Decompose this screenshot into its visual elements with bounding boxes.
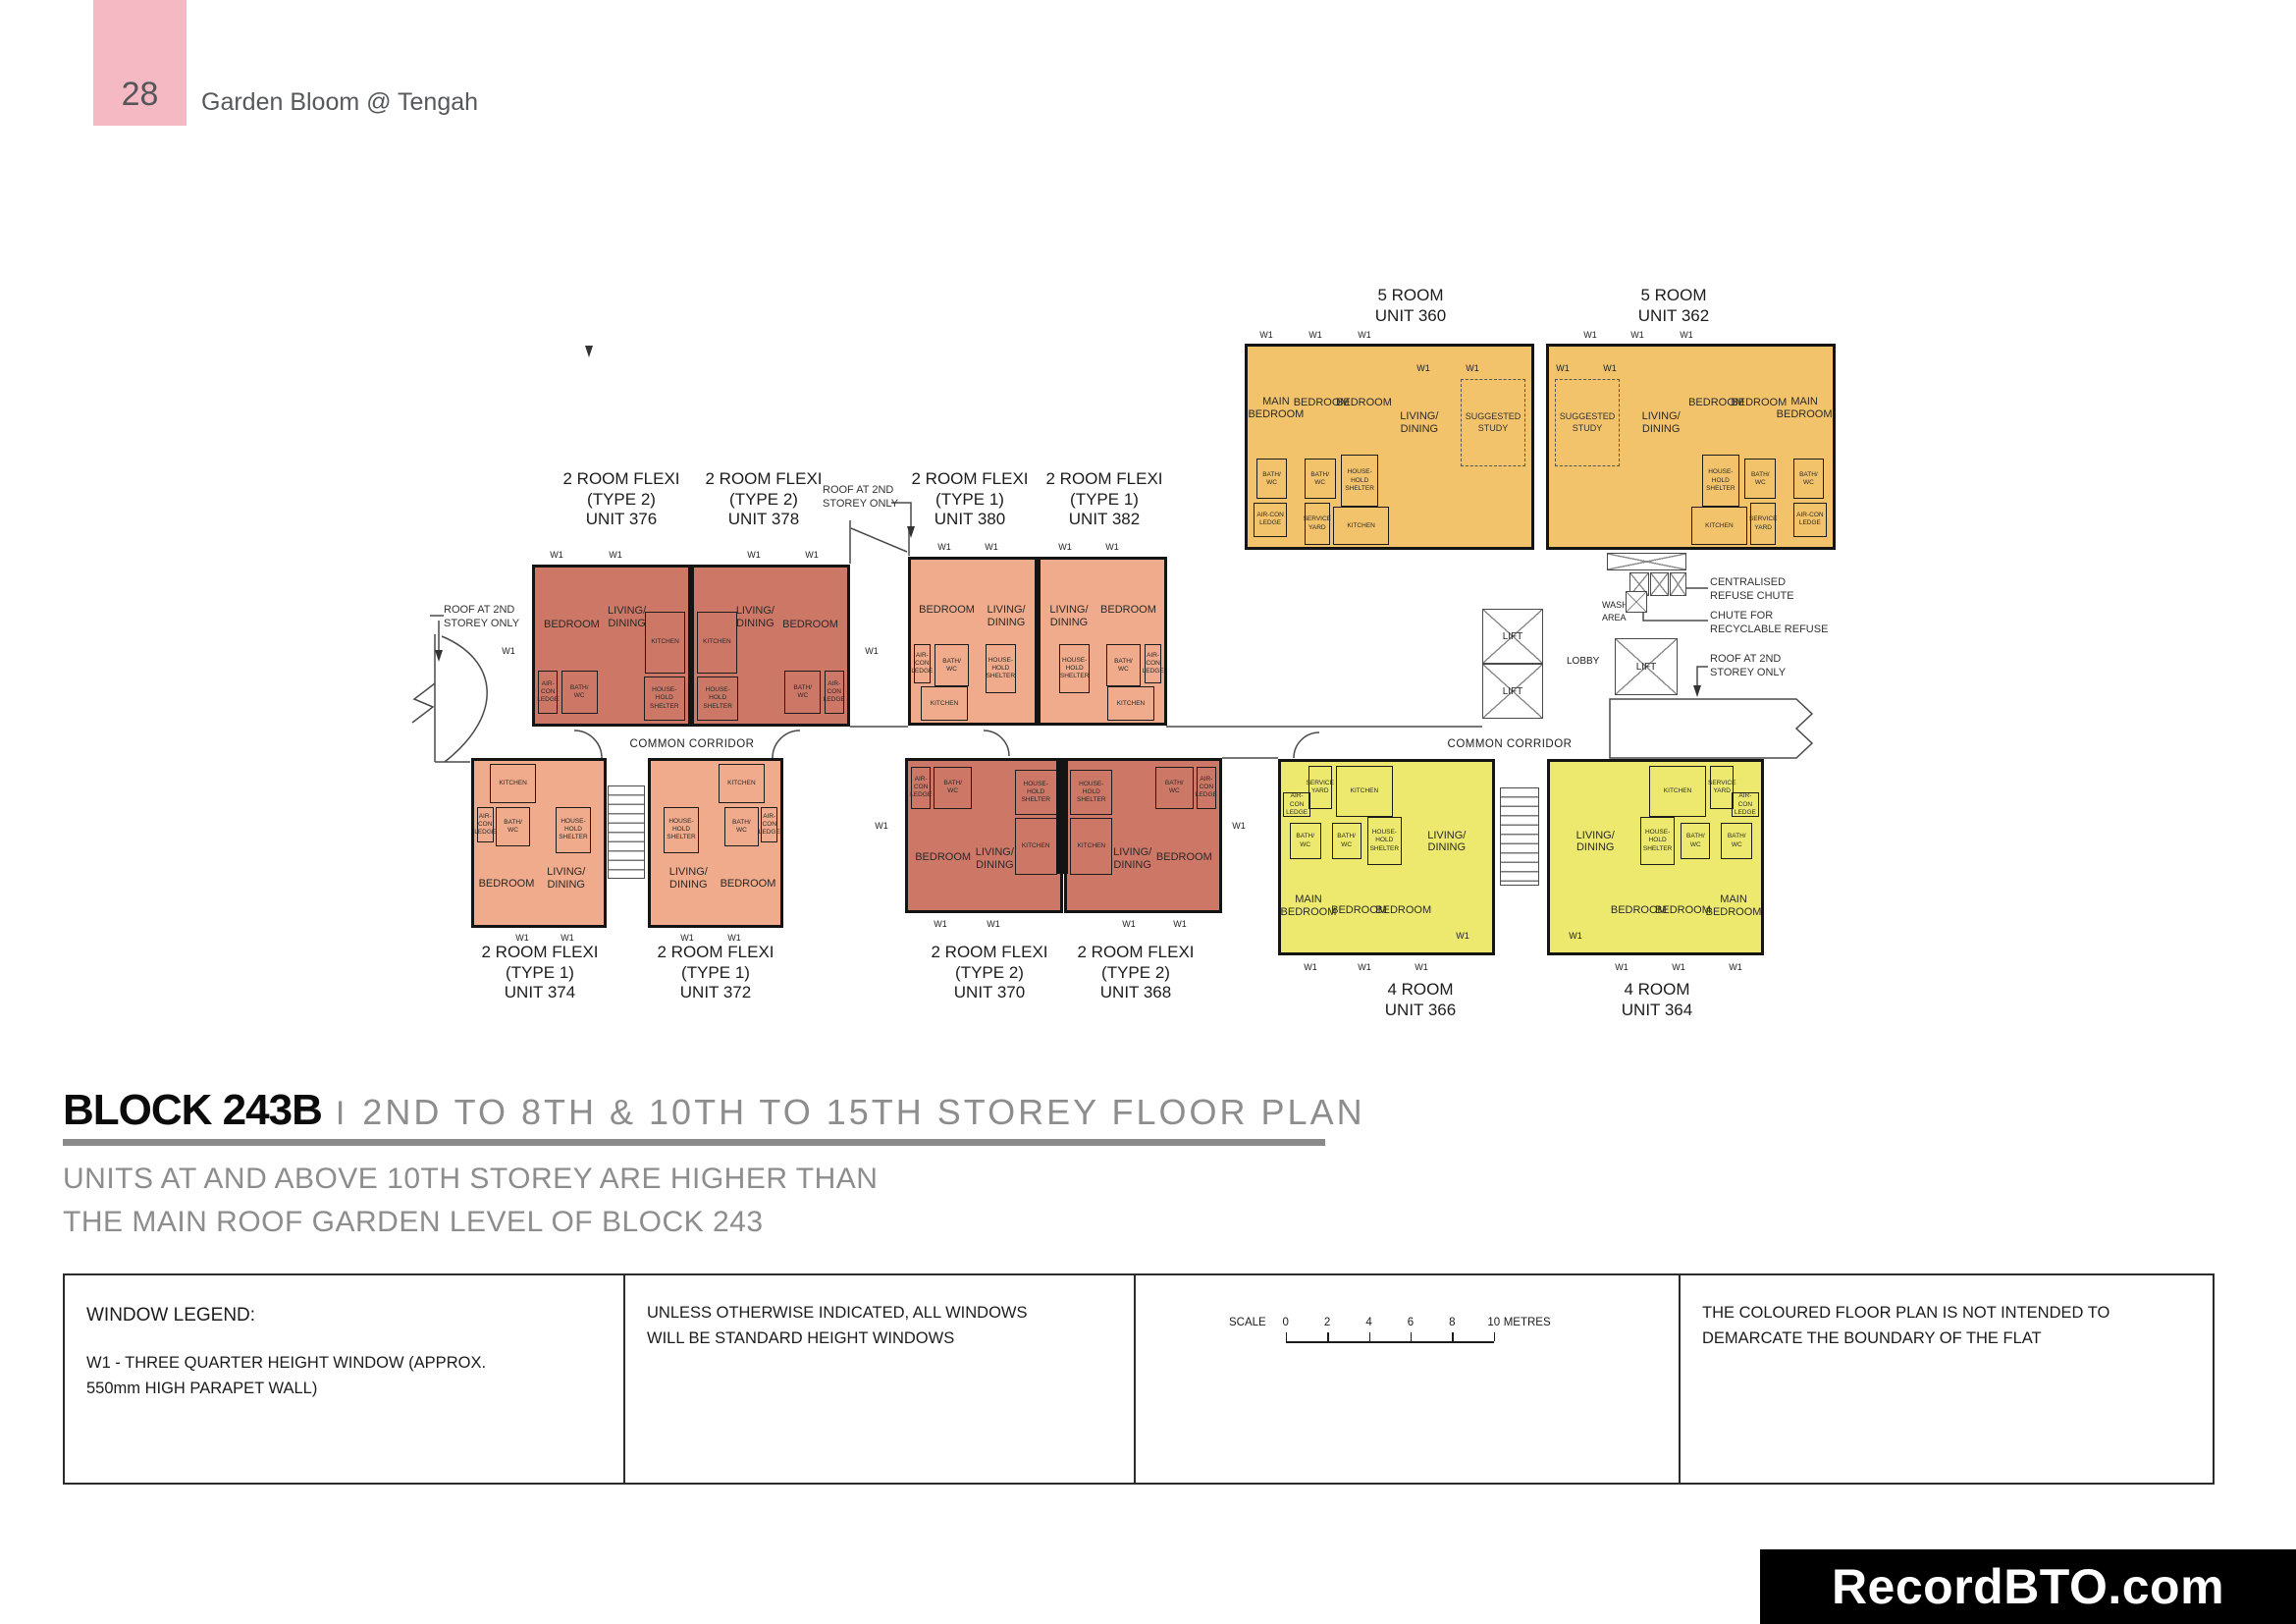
room-bath-wc: BATH/WC <box>1744 459 1776 499</box>
room-label: LIVING/DINING <box>1400 410 1438 436</box>
room-label: HOUSE-HOLDSHELTER <box>987 657 1016 680</box>
room-kitchen: KITCHEN <box>645 612 685 675</box>
room-air-con-ledge: AIR-CONLEDGE <box>914 644 932 683</box>
room-label: LIVING/DINING <box>1642 410 1681 436</box>
room-bedroom: BEDROOM <box>1097 579 1159 641</box>
room-label: BEDROOM <box>1611 904 1667 917</box>
unit-362: MAINBEDROOMBEDROOMBEDROOMLIVING/DININGSU… <box>1546 344 1836 550</box>
room-label: HOUSE-HOLDSHELTER <box>1706 468 1735 492</box>
room-label: AIR-CONLEDGE <box>910 776 932 799</box>
unit-368-title: 2 ROOM FLEXI(TYPE 2)UNIT 368 <box>1077 943 1194 1003</box>
room-label: BATH/WC <box>1262 471 1281 487</box>
common-corridor-label: COMMON CORRIDOR <box>630 738 755 750</box>
room-bedroom: BEDROOM <box>479 849 533 918</box>
room-label: LIVING/DINING <box>736 605 774 630</box>
room-label: BEDROOM <box>1688 397 1744 409</box>
disclaimer-line-1: THE COLOURED FLOOR PLAN IS NOT INTENDED … <box>1702 1301 2191 1326</box>
room-kitchen: KITCHEN <box>1333 507 1390 545</box>
room-label: BATH/WC <box>504 819 522 835</box>
room-air-con-ledge: AIR-CONLEDGE <box>825 671 844 715</box>
unit-370-title: 2 ROOM FLEXI(TYPE 2)UNIT 370 <box>931 943 1047 1003</box>
room-bath-wc: BATH/WC <box>496 807 529 846</box>
room-label: AIR-CONLEDGE <box>824 680 845 704</box>
room-label: MAINBEDROOM <box>1281 893 1337 919</box>
w1-window-label: W1 <box>1416 363 1430 373</box>
w1-window-label: W1 <box>550 550 563 560</box>
room-label: BEDROOM <box>915 851 971 864</box>
w1-window-label: W1 <box>1173 919 1187 929</box>
room-bedroom: BEDROOM <box>1618 876 1660 945</box>
room-bath-wc: BATH/WC <box>724 807 758 846</box>
lift-label: LIFT <box>1503 631 1523 642</box>
room-bedroom: BEDROOM <box>721 849 774 918</box>
unit-378: BEDROOMLIVING/DININGKITCHENAIR-CONLEDGEB… <box>691 565 850 727</box>
room-label: HOUSE-HOLDSHELTER <box>1021 781 1050 804</box>
room-label: BEDROOM <box>1375 904 1431 917</box>
unit-382-title: 2 ROOM FLEXI(TYPE 1)UNIT 382 <box>1045 469 1162 530</box>
staircase <box>1500 787 1539 886</box>
room-label: BATH/WC <box>1296 833 1314 848</box>
unit-370: AIR-CONLEDGEBATH/WCHOUSE-HOLDSHELTERKITC… <box>905 758 1063 913</box>
room-bath-wc: BATH/WC <box>1332 823 1362 859</box>
w1-window-label: W1 <box>1672 962 1685 972</box>
w1-window-label: W1 <box>1304 962 1317 972</box>
room-main-bedroom: MAINBEDROOM <box>1782 366 1827 451</box>
room-bedroom: BEDROOM <box>1739 366 1779 438</box>
room-label: AIR-CONLEDGE <box>759 813 780 837</box>
w1-window-label: W1 <box>987 919 1000 929</box>
room-label: BATH/WC <box>1310 471 1329 487</box>
unit-364-title: 4 ROOMUNIT 364 <box>1622 980 1692 1020</box>
room-kitchen: KITCHEN <box>1336 766 1393 817</box>
room-label: AIR-CONLEDGE <box>1256 512 1283 527</box>
note-line-1: UNITS AT AND ABOVE 10TH STOREY ARE HIGHE… <box>63 1163 878 1196</box>
room-label: BATH/WC <box>1165 780 1184 795</box>
room-bedroom: BEDROOM <box>1382 876 1424 945</box>
room-label: BATH/WC <box>943 780 962 795</box>
scale-tick-label: 8 <box>1449 1315 1455 1332</box>
room-kitchen: KITCHEN <box>1649 766 1706 817</box>
room-suggested-study: SUGGESTEDSTUDY <box>1461 379 1525 467</box>
room-living-dining: LIVING/DINING <box>1045 579 1093 654</box>
room-living-dining: LIVING/DINING <box>1631 375 1691 471</box>
w1-window-label: W1 <box>1615 962 1629 972</box>
room-label: HOUSE-HOLDSHELTER <box>1345 468 1374 492</box>
room-label: BATH/WC <box>793 684 812 700</box>
room-living-dining: LIVING/DINING <box>539 839 593 918</box>
recyclable-refuse-chute-note: CHUTE FORRECYCLABLE REFUSE <box>1710 609 1828 637</box>
room-label: KITCHEN <box>727 780 756 787</box>
room-label: BATH/WC <box>1799 471 1818 487</box>
room-bedroom: BEDROOM <box>1696 366 1735 438</box>
room-label: BEDROOM <box>1100 604 1156 617</box>
legend-table: WINDOW LEGEND: W1 - THREE QUARTER HEIGHT… <box>63 1273 2215 1485</box>
unit-366-title: 4 ROOMUNIT 366 <box>1385 980 1456 1020</box>
w1-window-label: W1 <box>609 550 622 560</box>
w1-window-label: W1 <box>1232 821 1246 831</box>
room-living-dining: LIVING/DINING <box>606 583 649 652</box>
w1-window-label: W1 <box>1058 542 1072 552</box>
room-label: BEDROOM <box>919 604 975 617</box>
refuse-chute-box <box>1650 572 1669 596</box>
w1-window-label: W1 <box>1122 919 1136 929</box>
scale-tick <box>1494 1332 1496 1341</box>
unit-360: MAINBEDROOMBEDROOMBEDROOMLIVING/DININGSU… <box>1245 344 1534 550</box>
w1-window-label: W1 <box>1630 330 1644 340</box>
lift-2: LIFT <box>1482 664 1543 719</box>
w1-window-label: W1 <box>1456 931 1469 941</box>
window-legend-title: WINDOW LEGEND: <box>86 1301 602 1329</box>
w1-window-label: W1 <box>1680 330 1693 340</box>
legend-scale-cell: SCALE 0246810 METRES <box>1136 1275 1681 1483</box>
room-house-hold-shelter: HOUSE-HOLDSHELTER <box>1341 455 1378 507</box>
windows-note-line-1: UNLESS OTHERWISE INDICATED, ALL WINDOWS <box>647 1301 1112 1326</box>
legend-disclaimer-cell: THE COLOURED FLOOR PLAN IS NOT INTENDED … <box>1681 1275 2213 1483</box>
room-bath-wc: BATH/WC <box>934 767 972 809</box>
w1-window-label: W1 <box>985 542 998 552</box>
room-label: AIR-CONLEDGE <box>911 652 933 676</box>
room-label: LIVING/DINING <box>547 866 585 892</box>
unit-380: BEDROOMLIVING/DININGAIR-CONLEDGEBATH/WCH… <box>908 557 1038 726</box>
room-label: AIR-CONLEDGE <box>1796 512 1823 527</box>
room-label: LIVING/DINING <box>976 846 1014 872</box>
watermark: RecordBTO.com <box>1760 1549 2296 1624</box>
room-label: LIVING/DINING <box>669 866 708 892</box>
unit-378-title: 2 ROOM FLEXI(TYPE 2)UNIT 378 <box>705 469 822 530</box>
room-bath-wc: BATH/WC <box>561 671 598 715</box>
room-bedroom: BEDROOM <box>916 579 978 641</box>
unit-376-title: 2 ROOM FLEXI(TYPE 2)UNIT 376 <box>562 469 679 530</box>
room-living-dining: LIVING/DINING <box>977 824 1013 895</box>
room-service-yard: SERVICEYARD <box>1308 766 1332 810</box>
roof-note-right: ROOF AT 2NDSTOREY ONLY <box>1710 652 1786 680</box>
room-kitchen: KITCHEN <box>921 686 968 721</box>
room-main-bedroom: MAINBEDROOM <box>1254 366 1299 451</box>
unit-374: KITCHENAIR-CONLEDGEBATH/WCHOUSE-HOLDSHEL… <box>471 758 607 928</box>
refuse-chute-box <box>1670 572 1686 596</box>
unit-372: KITCHENAIR-CONLEDGEBATH/WCHOUSE-HOLDSHEL… <box>648 758 783 928</box>
room-label: LIVING/DINING <box>1427 830 1466 855</box>
room-label: BEDROOM <box>544 619 600 631</box>
room-main-bedroom: MAINBEDROOM <box>1285 869 1331 946</box>
scale-baseline <box>1286 1341 1494 1343</box>
scale-unit: METRES <box>1504 1315 1551 1332</box>
room-living-dining: LIVING/DINING <box>662 839 716 918</box>
room-air-con-ledge: AIR-CONLEDGE <box>477 807 494 843</box>
scale-tick-label: 4 <box>1365 1315 1371 1332</box>
scale-tick-label: 2 <box>1324 1315 1330 1332</box>
w1-window-label: W1 <box>875 821 888 831</box>
room-label: KITCHEN <box>1347 522 1375 530</box>
room-label: KITCHEN <box>499 780 527 787</box>
title-underline <box>63 1139 1325 1146</box>
room-air-con-ledge: AIR-CONLEDGE <box>761 807 777 843</box>
room-label: HOUSE-HOLDSHELTER <box>667 818 696 841</box>
room-label: SERVICEYARD <box>1304 515 1331 531</box>
room-label: AIR-CONLEDGE <box>474 813 496 837</box>
room-bedroom: BEDROOM <box>779 589 840 661</box>
room-house-hold-shelter: HOUSE-HOLDSHELTER <box>1015 770 1057 815</box>
room-kitchen: KITCHEN <box>1107 686 1154 721</box>
room-label: BEDROOM <box>1336 397 1392 409</box>
w1-window-label: W1 <box>680 933 694 943</box>
window-legend-line-1: W1 - THREE QUARTER HEIGHT WINDOW (APPROX… <box>86 1351 602 1377</box>
room-house-hold-shelter: HOUSE-HOLDSHELTER <box>697 677 738 721</box>
roof-note-mid: ROOF AT 2NDSTOREY ONLY <box>823 483 898 512</box>
room-label: BEDROOM <box>782 619 838 631</box>
room-main-bedroom: MAINBEDROOM <box>1710 869 1756 946</box>
room-house-hold-shelter: HOUSE-HOLDSHELTER <box>986 644 1017 693</box>
room-air-con-ledge: AIR-CONLEDGE <box>1145 644 1162 683</box>
room-bedroom: BEDROOM <box>1153 821 1214 895</box>
room-label: HOUSE-HOLDSHELTER <box>1370 829 1400 852</box>
room-label: LIVING/DINING <box>1113 846 1151 872</box>
unit-360-title: 5 ROOMUNIT 360 <box>1375 286 1446 326</box>
scale-tick <box>1411 1332 1413 1341</box>
unit-374-title: 2 ROOM FLEXI(TYPE 1)UNIT 374 <box>481 943 598 1003</box>
room-living-dining: LIVING/DINING <box>734 583 777 652</box>
unit-382: BEDROOMLIVING/DININGAIR-CONLEDGEBATH/WCH… <box>1038 557 1167 726</box>
room-label: LIVING/DINING <box>1576 830 1615 855</box>
room-kitchen: KITCHEN <box>1015 818 1057 875</box>
scale-tick <box>1452 1332 1454 1341</box>
room-label: SERVICEYARD <box>1749 515 1777 531</box>
unit-368: AIR-CONLEDGEBATH/WCHOUSE-HOLDSHELTERKITC… <box>1064 758 1222 913</box>
w1-window-label: W1 <box>1105 542 1119 552</box>
room-label: BEDROOM <box>721 878 776 891</box>
room-label: HOUSE-HOLDSHELTER <box>1060 657 1090 680</box>
wash-area-label: WASHAREA <box>1602 599 1629 623</box>
room-bath-wc: BATH/WC <box>1256 459 1288 499</box>
room-bedroom: BEDROOM <box>541 589 602 661</box>
room-bath-wc: BATH/WC <box>784 671 821 715</box>
room-label: KITCHEN <box>1664 787 1692 795</box>
room-label: MAINBEDROOM <box>1706 893 1762 919</box>
room-service-yard: SERVICEYARD <box>1710 766 1734 810</box>
room-label: LIVING/DINING <box>1049 604 1088 629</box>
w1-window-label: W1 <box>1308 330 1322 340</box>
room-label: BATH/WC <box>942 658 961 674</box>
lift-3: LIFT <box>1615 638 1678 695</box>
scale-ruler: 0246810 <box>1286 1315 1494 1348</box>
legend-windows-note-cell: UNLESS OTHERWISE INDICATED, ALL WINDOWS … <box>625 1275 1136 1483</box>
room-label: BATH/WC <box>1686 833 1705 848</box>
w1-window-label: W1 <box>934 919 947 929</box>
room-kitchen: KITCHEN <box>719 764 766 803</box>
room-air-con-ledge: AIR-CONLEDGE <box>1732 792 1759 817</box>
w1-window-label: W1 <box>1603 363 1617 373</box>
room-label: KITCHEN <box>1022 842 1050 850</box>
room-house-hold-shelter: HOUSE-HOLDSHELTER <box>1070 770 1112 815</box>
scale-tick-label: 6 <box>1408 1315 1414 1332</box>
w1-window-label: W1 <box>727 933 741 943</box>
room-bath-wc: BATH/WC <box>1155 767 1194 809</box>
room-living-dining: LIVING/DINING <box>1390 375 1450 471</box>
w1-window-label: W1 <box>1569 931 1582 941</box>
floor-plan: MAINBEDROOMBEDROOMBEDROOMLIVING/DININGSU… <box>0 0 2296 1060</box>
room-label: BATH/WC <box>1337 833 1356 848</box>
room-air-con-ledge: AIR-CONLEDGE <box>1283 792 1310 817</box>
room-label: KITCHEN <box>931 700 959 708</box>
room-label: BEDROOM <box>479 878 535 891</box>
title-row: BLOCK 243BI2ND TO 8TH & 10TH TO 15TH STO… <box>63 1086 1365 1135</box>
note-line-2: THE MAIN ROOF GARDEN LEVEL OF BLOCK 243 <box>63 1206 764 1239</box>
room-suggested-study: SUGGESTEDSTUDY <box>1555 379 1620 467</box>
unit-376: BEDROOMLIVING/DININGKITCHENAIR-CONLEDGEB… <box>532 565 691 727</box>
room-label: KITCHEN <box>1078 842 1106 850</box>
room-label: SUGGESTEDSTUDY <box>1560 411 1616 434</box>
room-label: HOUSE-HOLDSHELTER <box>650 686 679 710</box>
window-legend-line-2: 550mm HIGH PARAPET WALL) <box>86 1377 602 1402</box>
room-living-dining: LIVING/DINING <box>1114 824 1150 895</box>
w1-window-label: W1 <box>747 550 761 560</box>
room-house-hold-shelter: HOUSE-HOLDSHELTER <box>1702 455 1739 507</box>
room-label: BATH/WC <box>1728 833 1746 848</box>
w1-window-label: W1 <box>1358 330 1371 340</box>
room-kitchen: KITCHEN <box>1691 507 1748 545</box>
w1-window-label: W1 <box>865 646 879 656</box>
scale-tick-label: 0 <box>1283 1315 1289 1332</box>
room-label: AIR-CONLEDGE <box>1733 792 1758 816</box>
room-air-con-ledge: AIR-CONLEDGE <box>538 671 558 715</box>
room-bath-wc: BATH/WC <box>1793 459 1825 499</box>
room-bedroom: BEDROOM <box>913 821 974 895</box>
room-bath-wc: BATH/WC <box>1305 459 1336 499</box>
room-label: HOUSE-HOLDSHELTER <box>703 686 732 710</box>
w1-window-label: W1 <box>1259 330 1273 340</box>
room-bath-wc: BATH/WC <box>934 644 969 686</box>
w1-window-label: W1 <box>1556 363 1570 373</box>
room-living-dining: LIVING/DINING <box>983 579 1030 654</box>
w1-window-label: W1 <box>515 933 529 943</box>
room-label: KITCHEN <box>651 638 679 646</box>
windows-note-line-2: WILL BE STANDARD HEIGHT WINDOWS <box>647 1326 1112 1352</box>
room-bedroom: BEDROOM <box>1344 366 1383 438</box>
room-bedroom: BEDROOM <box>1662 876 1704 945</box>
disclaimer-line-2: DEMARCATE THE BOUNDARY OF THE FLAT <box>1702 1326 2191 1352</box>
w1-window-label: W1 <box>561 933 574 943</box>
room-label: BATH/WC <box>732 819 751 835</box>
w1-window-label: W1 <box>502 646 515 656</box>
room-kitchen: KITCHEN <box>1070 818 1112 875</box>
room-label: BATH/WC <box>570 684 589 700</box>
scale-tick-label: 10 <box>1487 1315 1500 1332</box>
room-label: AIR-CONLEDGE <box>1284 792 1309 816</box>
unit-362-title: 5 ROOMUNIT 362 <box>1638 286 1709 326</box>
wash-area-chute <box>1626 591 1647 613</box>
title-separator: I <box>336 1095 345 1132</box>
room-label: LIVING/DINING <box>608 605 646 630</box>
unit-364: SERVICEYARDKITCHENAIR-CONLEDGEBATH/WCBAT… <box>1547 759 1764 955</box>
room-label: AIR-CONLEDGE <box>1143 652 1164 676</box>
lift-label: LIFT <box>1503 686 1523 697</box>
wall-bar <box>1056 758 1068 874</box>
common-corridor-label: COMMON CORRIDOR <box>1448 738 1573 750</box>
refuse-chute-box <box>1607 553 1686 570</box>
w1-window-label: W1 <box>937 542 951 552</box>
room-label: HOUSE-HOLDSHELTER <box>559 818 588 841</box>
room-label: KITCHEN <box>1117 700 1146 708</box>
room-label: KITCHEN <box>1705 522 1734 530</box>
unit-372-title: 2 ROOM FLEXI(TYPE 1)UNIT 372 <box>657 943 774 1003</box>
room-air-con-ledge: AIR-CONLEDGE <box>911 767 931 809</box>
room-service-yard: SERVICEYARD <box>1750 503 1776 545</box>
room-house-hold-shelter: HOUSE-HOLDSHELTER <box>1367 817 1401 865</box>
room-bath-wc: BATH/WC <box>1290 823 1321 859</box>
room-label: HOUSE-HOLDSHELTER <box>1643 829 1673 852</box>
room-air-con-ledge: AIR-CONLEDGE <box>1197 767 1216 809</box>
room-kitchen: KITCHEN <box>490 764 537 803</box>
scale-tick <box>1286 1332 1288 1341</box>
w1-window-label: W1 <box>805 550 819 560</box>
room-air-con-ledge: AIR-CONLEDGE <box>1254 503 1288 537</box>
unit-380-title: 2 ROOM FLEXI(TYPE 1)UNIT 380 <box>911 469 1028 530</box>
room-bath-wc: BATH/WC <box>1106 644 1141 686</box>
w1-window-label: W1 <box>1466 363 1479 373</box>
room-label: SUGGESTEDSTUDY <box>1466 411 1522 434</box>
room-label: AIR-CONLEDGE <box>537 680 559 704</box>
legend-window-cell: WINDOW LEGEND: W1 - THREE QUARTER HEIGHT… <box>65 1275 625 1483</box>
room-bedroom: BEDROOM <box>1338 876 1380 945</box>
room-kitchen: KITCHEN <box>697 612 737 675</box>
room-label: BATH/WC <box>1114 658 1133 674</box>
scale-tick <box>1369 1332 1371 1341</box>
room-service-yard: SERVICEYARD <box>1305 503 1330 545</box>
unit-366: SERVICEYARDKITCHENAIR-CONLEDGEBATH/WCBAT… <box>1278 759 1495 955</box>
w1-window-label: W1 <box>1358 962 1371 972</box>
w1-window-label: W1 <box>1415 962 1428 972</box>
w1-window-label: W1 <box>1583 330 1597 340</box>
room-house-hold-shelter: HOUSE-HOLDSHELTER <box>1059 644 1091 693</box>
room-air-con-ledge: AIR-CONLEDGE <box>1793 503 1828 537</box>
w1-window-label: W1 <box>1729 962 1742 972</box>
block-title: BLOCK 243B <box>63 1086 322 1134</box>
roof-note-left: ROOF AT 2NDSTOREY ONLY <box>444 603 519 631</box>
room-label: KITCHEN <box>703 638 731 646</box>
room-label: KITCHEN <box>1351 787 1379 795</box>
staircase <box>608 785 645 879</box>
scale-label: SCALE <box>1229 1315 1266 1332</box>
lift-1: LIFT <box>1482 609 1543 664</box>
room-label: HOUSE-HOLDSHELTER <box>1077 781 1106 804</box>
room-label: AIR-CONLEDGE <box>1196 776 1217 799</box>
room-house-hold-shelter: HOUSE-HOLDSHELTER <box>1640 817 1674 865</box>
room-label: BEDROOM <box>1156 851 1212 864</box>
room-label: LIVING/DINING <box>987 604 1025 629</box>
lobby-label: LOBBY <box>1567 656 1599 667</box>
storey-title: 2ND TO 8TH & 10TH TO 15TH STOREY FLOOR P… <box>362 1092 1364 1132</box>
room-house-hold-shelter: HOUSE-HOLDSHELTER <box>644 677 685 721</box>
room-bath-wc: BATH/WC <box>1721 823 1752 859</box>
centralised-refuse-chute-note: CENTRALISEDREFUSE CHUTE <box>1710 575 1794 604</box>
lift-label: LIFT <box>1636 662 1657 673</box>
scale-tick <box>1327 1332 1329 1341</box>
room-label: BATH/WC <box>1751 471 1770 487</box>
room-bath-wc: BATH/WC <box>1681 823 1710 859</box>
